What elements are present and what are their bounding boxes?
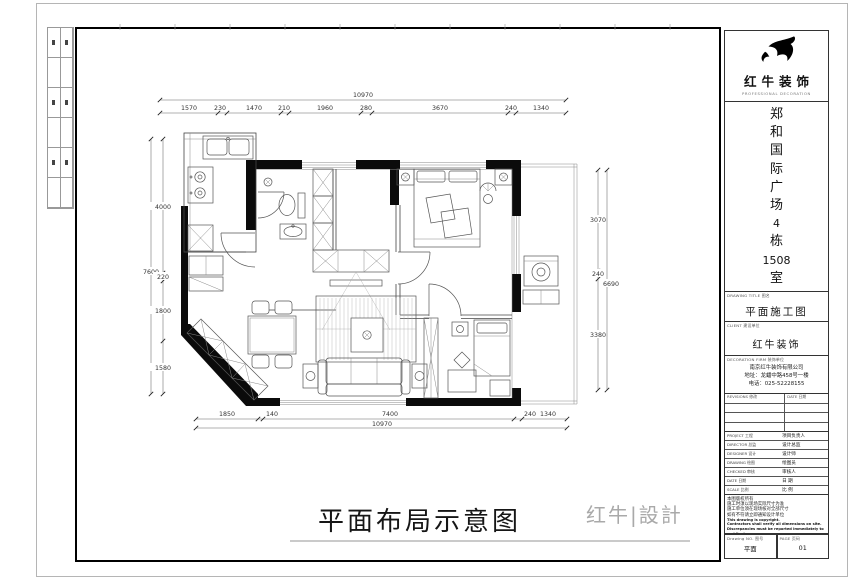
faucet-icon [227,137,230,140]
company-tagline: PROFESSIONAL DECORATION [725,91,828,96]
blanket [426,194,455,223]
dining-chair [275,355,292,368]
svg-text:7400: 7400 [382,411,398,418]
info-row-project: PROJECT 工程项目负责人 [725,432,828,441]
firm-name: 南京红牛装饰有限公司 [725,364,828,372]
svg-text:4000: 4000 [155,204,171,211]
pillow [477,323,507,333]
drawing-title: 平面施工图 [725,304,828,319]
svg-text:240: 240 [524,411,536,418]
toilet-tank [298,193,305,218]
svg-text:1960: 1960 [317,105,333,112]
side-table [412,364,427,388]
info-row-director: DIRECTOR 总监设计总监 [725,441,828,450]
svg-text:230: 230 [214,105,226,112]
svg-text:10970: 10970 [372,421,392,428]
kitchen-stove [188,167,213,203]
info-row-scale: SCALE 比例比 例 [725,486,828,494]
bull-logo-icon [755,33,799,67]
corridor-cabinet [313,169,333,250]
notes-block: 本图版权所有 施工时须以现场实际尺寸为准 施工单位须在现场核对全部尺寸 如有不符… [724,495,829,534]
balcony [523,256,559,304]
company-name: 红牛装饰 [730,71,828,90]
master-door-arc [398,252,430,284]
kitchen-sink-counter [203,136,253,159]
dim-bottom: 1850 140 7400 240 1340 10970 [194,411,569,430]
svg-text:1580: 1580 [155,365,171,372]
number-boxes: Drawing NO. 图号 平面 PAGE 页码 01 [724,534,829,559]
info-row-drawing: DRAWING 绘图绘图员 [725,459,828,468]
kitchen [184,133,256,252]
plant-icon [306,372,315,381]
pillow [449,171,477,182]
kitchen-sink-bowl [207,139,227,155]
side-table [303,364,318,388]
svg-text:240: 240 [505,105,517,112]
page-no-box: PAGE 页码 01 [777,534,830,559]
info-row-checked: CHECKED 审核审核人 [725,468,828,477]
dim-right: 3070 240 3380 6690 [585,168,624,392]
drawing-title-cell: DRAWING TITLE 图名 平面施工图 [724,292,829,322]
main-title: 平面布局示意图 [318,501,521,538]
drawing-no-value: 平面 [725,544,776,553]
info-rows: PROJECT 工程项目负责人 DIRECTOR 总监设计总监 DESIGNER… [724,432,829,495]
info-row-designer: DESIGNER 设计设计师 [725,450,828,459]
svg-text:3670: 3670 [432,105,448,112]
svg-text:3380: 3380 [590,332,606,339]
nightstand [452,322,468,336]
bath-door-arc [258,192,284,218]
windows [256,163,577,405]
firm-address: 地址：龙蟠中路458号一楼 [725,372,828,380]
svg-text:210: 210 [278,105,290,112]
double-bed [414,169,480,247]
company-logo-block: 红牛装饰 PROFESSIONAL DECORATION [724,30,829,102]
living-room [303,250,427,396]
svg-text:6690: 6690 [603,281,619,288]
desk [448,370,476,392]
brand-logo-text: 红牛|設計 [586,499,683,528]
dining-chair [252,355,269,368]
client-label: CLIENT 建设单位 [727,323,760,329]
entry-door-arc [221,233,255,267]
client-cell: CLIENT 建设单位 红牛装饰 [724,322,829,356]
client-name: 红牛装饰 [725,336,828,351]
sofa-back [326,384,402,396]
page-value: 01 [778,544,829,552]
firm-phone: 电话：025-52228155 [725,380,828,388]
sofa-armrest [401,360,410,394]
drawing-no-box: Drawing NO. 图号 平面 [724,534,777,559]
revisions-date-label: DATE 日期 [785,394,828,403]
dining-chair [275,301,292,314]
dim-label: 10970 [353,92,373,99]
project-name-vertical: 郑 和 国 际 广 场 4 栋 1508 室 [724,102,829,292]
cabinet [490,380,510,396]
dining-table [248,316,296,354]
svg-text:280: 280 [360,105,372,112]
drawing-sheet: 10970 1570 230 1470 210 1960 280 3670 24… [0,0,860,580]
bedroom2-door-arc [429,284,461,316]
svg-text:3070: 3070 [590,217,606,224]
frame-ticks [120,24,670,30]
pillow [417,171,445,182]
kitchen-sink-bowl [229,139,249,155]
svg-text:1800: 1800 [155,308,171,315]
svg-text:240: 240 [592,271,604,278]
dim-top: 10970 1570 230 1470 210 1960 280 3670 24… [158,92,568,115]
svg-text:1570: 1570 [181,105,197,112]
dim-left: 7600 4000 220 1800 1580 [138,137,176,396]
svg-text:1850: 1850 [219,411,235,418]
blanket [441,208,472,238]
desk-chair [454,352,470,368]
svg-text:140: 140 [266,411,278,418]
svg-text:1340: 1340 [540,411,556,418]
drawing-title-label: DRAWING TITLE 图名 [727,293,770,299]
bathroom [256,169,336,310]
svg-text:1470: 1470 [246,105,262,112]
lamp-icon [457,326,464,333]
info-row-date: DATE 日期日 期 [725,477,828,486]
washing-machine [524,256,558,286]
firm-label: DECORATION FIRM 装饰单位 [727,357,784,363]
stool [484,195,493,204]
entry-hall [189,256,223,291]
svg-text:220: 220 [157,274,169,281]
revisions-label: REVISIONS 修改 [725,394,785,403]
firm-cell: DECORATION FIRM 装饰单位 南京红牛装饰有限公司 地址：龙蟠中路4… [724,356,829,394]
tv [330,280,382,286]
drawing-no-label: Drawing NO. 图号 [727,536,763,542]
second-bedroom [424,318,510,398]
title-block: 红牛装饰 PROFESSIONAL DECORATION 郑 和 国 际 广 场… [719,27,832,562]
revisions-table: REVISIONS 修改 DATE 日期 [724,394,829,432]
toilet-bowl [279,195,295,216]
dining-chair [252,301,269,314]
tv-cabinet [313,250,389,272]
svg-text:1340: 1340 [533,105,549,112]
plant-icon [415,372,424,381]
page-label: PAGE 页码 [780,536,801,542]
